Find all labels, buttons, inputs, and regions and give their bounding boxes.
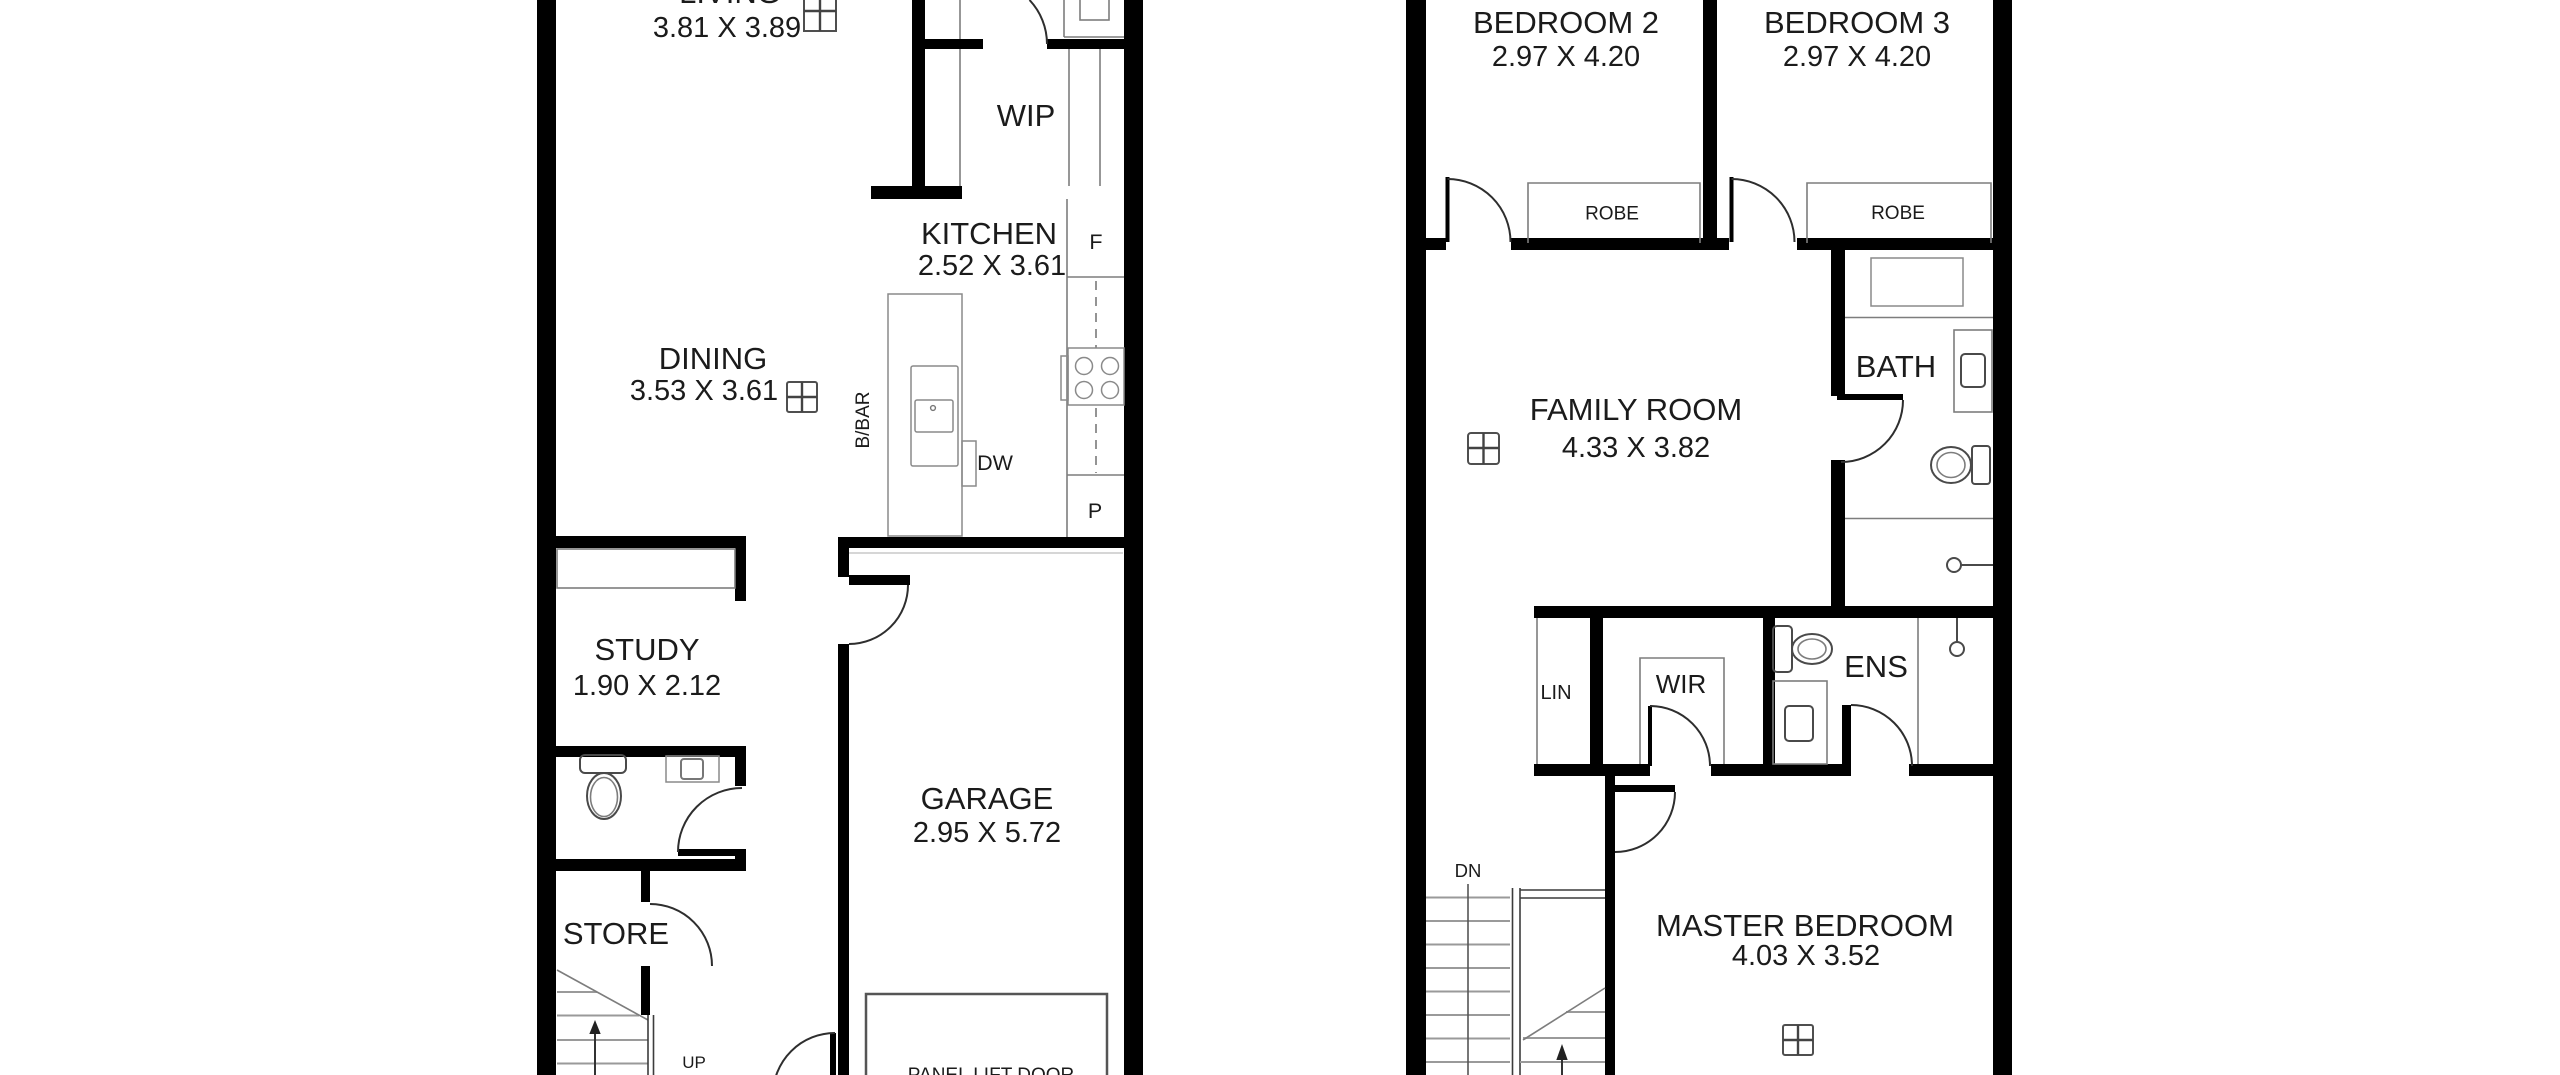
svg-text:ENS: ENS [1844, 649, 1908, 684]
svg-text:2.97 X 4.20: 2.97 X 4.20 [1783, 41, 1931, 73]
svg-text:2.52 X 3.61: 2.52 X 3.61 [918, 250, 1066, 282]
svg-text:3.53 X 3.61: 3.53 X 3.61 [630, 375, 778, 407]
svg-text:BATH: BATH [1856, 349, 1936, 384]
svg-text:DINING: DINING [659, 341, 768, 376]
svg-text:MASTER BEDROOM: MASTER BEDROOM [1656, 908, 1954, 943]
svg-text:DW: DW [977, 451, 1014, 475]
svg-text:UP: UP [682, 1053, 706, 1072]
svg-text:BEDROOM 2: BEDROOM 2 [1473, 5, 1659, 40]
svg-text:3.81 X 3.89: 3.81 X 3.89 [653, 12, 801, 44]
svg-text:GARAGE: GARAGE [921, 781, 1054, 816]
svg-text:B/BAR: B/BAR [853, 391, 874, 448]
svg-text:KITCHEN: KITCHEN [921, 216, 1057, 251]
svg-text:4.03 X 3.52: 4.03 X 3.52 [1732, 940, 1880, 972]
svg-text:4.33 X 3.82: 4.33 X 3.82 [1562, 432, 1710, 464]
svg-text:2.95 X 5.72: 2.95 X 5.72 [913, 817, 1061, 849]
svg-text:FAMILY ROOM: FAMILY ROOM [1530, 392, 1742, 427]
svg-text:ROBE: ROBE [1871, 203, 1925, 224]
svg-text:ROBE: ROBE [1585, 204, 1639, 225]
svg-text:1.90 X 2.12: 1.90 X 2.12 [573, 670, 721, 702]
svg-text:PANEL LIFT DOOR: PANEL LIFT DOOR [908, 1065, 1074, 1075]
svg-text:WIP: WIP [997, 98, 1056, 133]
svg-text:DN: DN [1455, 860, 1482, 881]
svg-text:F: F [1089, 230, 1102, 254]
svg-text:P: P [1088, 499, 1102, 523]
svg-text:2.97 X 4.20: 2.97 X 4.20 [1492, 41, 1640, 73]
svg-text:STUDY: STUDY [594, 632, 699, 667]
svg-text:LIN: LIN [1540, 682, 1571, 704]
svg-text:STORE: STORE [563, 916, 669, 951]
svg-text:LIVING: LIVING [679, 0, 781, 10]
svg-text:BEDROOM 3: BEDROOM 3 [1764, 5, 1950, 40]
svg-text:WIR: WIR [1656, 669, 1707, 699]
